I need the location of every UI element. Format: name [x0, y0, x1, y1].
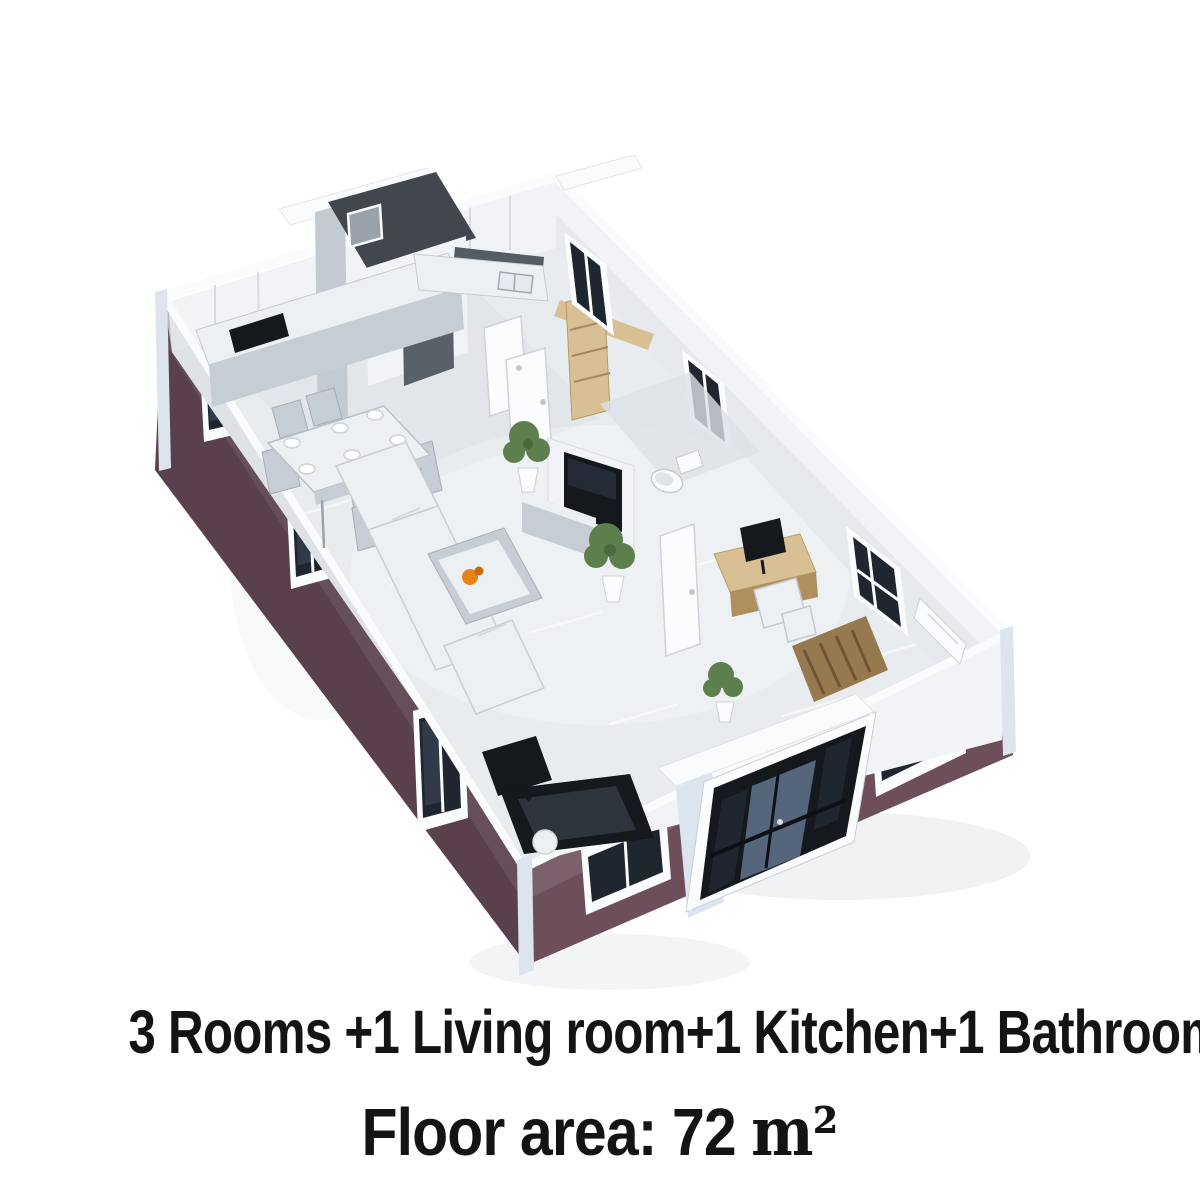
product-image: 3 Rooms +1 Living room+1 Kitchen+1 Bathr… [0, 0, 1200, 1200]
floor-area-unit: m² [752, 1092, 838, 1171]
caption-room-configuration-text: 3 Rooms +1 Living room+1 Kitchen+1 Bathr… [128, 1002, 1200, 1063]
utility-window [348, 205, 382, 247]
door-handle [777, 819, 783, 825]
floor-area-label: Floor area: 72 [362, 1095, 736, 1170]
caption-room-configuration: 3 Rooms +1 Living room+1 Kitchen+1 Bathr… [0, 1002, 1200, 1063]
caption-floor-area: Floor area: 72m² [0, 1098, 1200, 1166]
white-ball [533, 830, 557, 854]
